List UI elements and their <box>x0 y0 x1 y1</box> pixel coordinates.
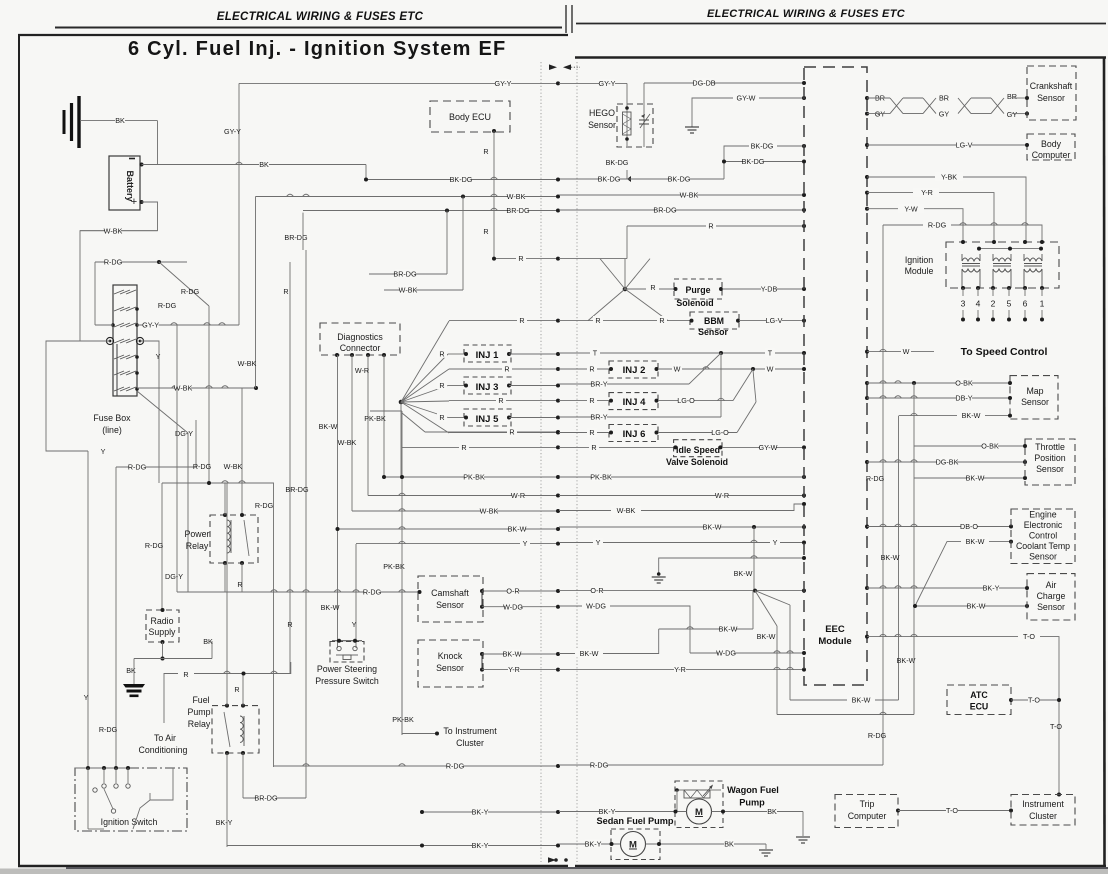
svg-text:R: R <box>237 580 242 589</box>
svg-text:Sensor: Sensor <box>1037 93 1065 103</box>
svg-text:W-BK: W-BK <box>617 506 636 515</box>
svg-text:PK-BK: PK-BK <box>392 715 414 724</box>
svg-text:W: W <box>903 347 910 356</box>
svg-text:Connector: Connector <box>340 343 381 353</box>
svg-text:Y-R: Y-R <box>674 665 686 674</box>
svg-text:Body: Body <box>1041 139 1062 149</box>
svg-text:Sensor: Sensor <box>436 663 464 673</box>
svg-text:W-BK: W-BK <box>174 384 193 393</box>
svg-text:BK-DG: BK-DG <box>742 157 765 166</box>
svg-text:GY-W: GY-W <box>737 94 756 103</box>
svg-text:BK-Y: BK-Y <box>216 818 233 827</box>
svg-text:T: T <box>768 349 773 358</box>
svg-text:BK-Y: BK-Y <box>472 808 489 817</box>
svg-text:R: R <box>518 254 523 263</box>
svg-text:Ignition: Ignition <box>905 255 933 265</box>
svg-text:R: R <box>498 396 503 405</box>
svg-text:Module: Module <box>818 636 851 647</box>
svg-text:O-BK: O-BK <box>955 379 973 388</box>
svg-text:W-BK: W-BK <box>680 191 699 200</box>
svg-text:Sensor: Sensor <box>698 327 728 337</box>
svg-text:ELECTRICAL WIRING & FUSES ETC: ELECTRICAL WIRING & FUSES ETC <box>217 11 424 23</box>
svg-text:BR-DG: BR-DG <box>284 233 308 242</box>
svg-text:DB-O: DB-O <box>960 522 978 531</box>
svg-text:DG-BK: DG-BK <box>936 458 959 467</box>
svg-text:T-O: T-O <box>1050 722 1062 731</box>
svg-text:Relay: Relay <box>186 541 209 551</box>
svg-text:R: R <box>483 147 488 156</box>
svg-text:1: 1 <box>1040 299 1045 309</box>
svg-text:BK: BK <box>767 807 777 816</box>
svg-text:Y: Y <box>101 447 106 456</box>
svg-text:Sensor: Sensor <box>1029 552 1057 562</box>
svg-text:R-DG: R-DG <box>868 731 887 740</box>
svg-text:W-BK: W-BK <box>338 438 357 447</box>
svg-text:M: M <box>695 807 703 818</box>
svg-text:Sedan Fuel Pump: Sedan Fuel Pump <box>596 816 673 826</box>
svg-text:BK: BK <box>259 160 269 169</box>
svg-text:BK-W: BK-W <box>580 649 599 658</box>
svg-text:Ignition Switch: Ignition Switch <box>101 817 158 827</box>
svg-text:W-DG: W-DG <box>586 602 606 611</box>
svg-text:DG-Y: DG-Y <box>175 429 193 438</box>
svg-text:DG-DB: DG-DB <box>692 79 715 88</box>
svg-text:INJ 1: INJ 1 <box>476 350 499 361</box>
svg-text:Pump: Pump <box>188 707 211 717</box>
svg-text:BK-DG: BK-DG <box>598 175 621 184</box>
svg-text:Y: Y <box>84 693 89 702</box>
svg-text:BK-W: BK-W <box>966 537 985 546</box>
svg-text:R: R <box>439 381 444 390</box>
svg-text:W-BK: W-BK <box>104 226 123 235</box>
svg-text:BR: BR <box>939 94 949 103</box>
svg-text:(line): (line) <box>102 425 122 435</box>
svg-text:To Speed Control: To Speed Control <box>961 346 1048 358</box>
svg-text:R: R <box>183 670 188 679</box>
svg-text:GY-Y: GY-Y <box>142 321 159 330</box>
svg-text:T-O: T-O <box>1023 632 1035 641</box>
svg-text:R: R <box>659 316 664 325</box>
svg-text:Purge: Purge <box>686 285 711 295</box>
svg-text:4: 4 <box>976 299 981 309</box>
svg-text:Engine: Engine <box>1029 510 1056 520</box>
svg-text:PK-BK: PK-BK <box>463 473 485 482</box>
svg-text:R: R <box>234 685 239 694</box>
svg-text:BK-W: BK-W <box>321 603 340 612</box>
svg-text:2: 2 <box>991 299 996 309</box>
svg-text:BR-DG: BR-DG <box>506 206 530 215</box>
svg-text:Y-W: Y-W <box>904 204 918 213</box>
svg-text:R: R <box>483 227 488 236</box>
svg-text:Sensor: Sensor <box>436 600 464 610</box>
svg-text:INJ 5: INJ 5 <box>476 414 499 425</box>
svg-text:BK-DG: BK-DG <box>606 158 629 167</box>
svg-text:T: T <box>593 349 598 358</box>
svg-text:LG-O: LG-O <box>677 396 695 405</box>
svg-text:R: R <box>589 428 594 437</box>
svg-text:BK: BK <box>126 666 136 675</box>
svg-text:Throttle: Throttle <box>1035 442 1065 452</box>
svg-text:R-DG: R-DG <box>145 541 164 550</box>
svg-text:Idle Speed: Idle Speed <box>676 445 720 455</box>
svg-text:LG-V: LG-V <box>956 141 973 150</box>
svg-text:W: W <box>674 365 681 374</box>
svg-text:GY-Y: GY-Y <box>495 79 512 88</box>
svg-text:Y: Y <box>773 538 778 547</box>
svg-text:R: R <box>519 316 524 325</box>
svg-text:R: R <box>595 316 600 325</box>
svg-text:Air: Air <box>1046 580 1057 590</box>
svg-text:ELECTRICAL WIRING & FUSES ETC: ELECTRICAL WIRING & FUSES ETC <box>707 8 906 20</box>
svg-text:Y-R: Y-R <box>508 665 520 674</box>
svg-text:BR: BR <box>1007 92 1017 101</box>
svg-text:BK-Y: BK-Y <box>599 807 616 816</box>
svg-text:INJ 2: INJ 2 <box>623 365 646 376</box>
svg-text:BK-W: BK-W <box>897 656 916 665</box>
svg-text:R-DG: R-DG <box>446 762 465 771</box>
svg-text:GY-Y: GY-Y <box>599 79 616 88</box>
svg-text:BK: BK <box>724 840 734 849</box>
svg-text:R-DG: R-DG <box>193 462 212 471</box>
svg-text:R-DG: R-DG <box>363 588 382 597</box>
svg-text:R-DG: R-DG <box>99 725 118 734</box>
svg-text:W-BK: W-BK <box>238 359 257 368</box>
svg-text:EEC: EEC <box>825 624 845 635</box>
svg-text:Sensor: Sensor <box>1036 464 1064 474</box>
svg-text:BR-Y: BR-Y <box>590 380 607 389</box>
svg-text:R-DG: R-DG <box>181 287 200 296</box>
svg-text:R: R <box>589 396 594 405</box>
svg-text:BK-DG: BK-DG <box>668 175 691 184</box>
svg-text:R: R <box>439 350 444 359</box>
svg-text:BK-W: BK-W <box>962 411 981 420</box>
svg-text:W-R: W-R <box>511 491 525 500</box>
svg-text:W-DG: W-DG <box>716 649 736 658</box>
svg-text:+: + <box>131 196 137 208</box>
svg-text:O-BK: O-BK <box>981 442 999 451</box>
svg-text:INJ 4: INJ 4 <box>623 397 646 408</box>
svg-text:Y: Y <box>352 620 357 629</box>
svg-text:GY-Y: GY-Y <box>224 127 241 136</box>
svg-text:GY-W: GY-W <box>759 443 778 452</box>
svg-text:BK-W: BK-W <box>503 650 522 659</box>
svg-text:6 Cyl. Fuel Inj. - Ignition Sy: 6 Cyl. Fuel Inj. - Ignition System EF <box>128 38 507 60</box>
svg-text:Fuse Box: Fuse Box <box>93 413 131 423</box>
svg-text:R-DG: R-DG <box>866 474 885 483</box>
svg-text:BK-W: BK-W <box>852 696 871 705</box>
svg-text:Instrument: Instrument <box>1022 799 1064 809</box>
svg-text:T-O: T-O <box>1028 696 1040 705</box>
svg-text:INJ 3: INJ 3 <box>476 382 499 393</box>
svg-text:Pressure Switch: Pressure Switch <box>315 676 379 686</box>
svg-text:Crankshaft: Crankshaft <box>1030 81 1073 91</box>
svg-text:Relay: Relay <box>188 719 211 729</box>
svg-text:Conditioning: Conditioning <box>139 745 188 755</box>
svg-text:BR-DG: BR-DG <box>653 206 677 215</box>
svg-text:R: R <box>708 222 713 231</box>
svg-text:BR-DG: BR-DG <box>393 270 417 279</box>
svg-text:Y-BK: Y-BK <box>941 173 957 182</box>
svg-text:R-DG: R-DG <box>104 258 123 267</box>
svg-text:R-DG: R-DG <box>128 463 147 472</box>
svg-text:BK-W: BK-W <box>319 422 338 431</box>
svg-text:Control: Control <box>1029 531 1057 541</box>
svg-text:Power Steering: Power Steering <box>317 664 377 674</box>
svg-text:Y-DB: Y-DB <box>761 285 778 294</box>
svg-text:3: 3 <box>961 299 966 309</box>
svg-text:INJ 6: INJ 6 <box>623 429 646 440</box>
svg-text:BK-W: BK-W <box>881 553 900 562</box>
svg-text:BR-DG: BR-DG <box>285 485 309 494</box>
svg-text:Camshaft: Camshaft <box>431 588 469 598</box>
svg-text:BK-Y: BK-Y <box>472 841 489 850</box>
svg-text:M: M <box>629 840 637 851</box>
svg-text:R: R <box>504 365 509 374</box>
svg-text:ATC: ATC <box>970 690 988 700</box>
svg-text:6: 6 <box>1023 299 1028 309</box>
svg-text:BK-W: BK-W <box>757 632 776 641</box>
svg-text:W-BK: W-BK <box>507 192 526 201</box>
svg-text:Fuel: Fuel <box>192 695 209 705</box>
svg-text:BK-W: BK-W <box>967 602 986 611</box>
svg-text:BK-W: BK-W <box>966 474 985 483</box>
svg-text:BK-DG: BK-DG <box>751 142 774 151</box>
svg-text:Trip: Trip <box>860 799 875 809</box>
svg-text:Supply: Supply <box>149 627 176 637</box>
svg-text:GY: GY <box>939 110 950 119</box>
svg-text:BR-DG: BR-DG <box>254 794 278 803</box>
svg-text:BBM: BBM <box>704 316 724 326</box>
svg-text:LG-O: LG-O <box>711 428 729 437</box>
svg-text:W: W <box>767 365 774 374</box>
svg-text:Y: Y <box>523 539 528 548</box>
svg-text:Sensor: Sensor <box>1021 397 1049 407</box>
svg-text:BK-DG: BK-DG <box>450 175 473 184</box>
svg-text:DB-Y: DB-Y <box>955 394 972 403</box>
svg-text:BK: BK <box>115 116 125 125</box>
svg-text:R: R <box>650 283 655 292</box>
svg-text:BR-Y: BR-Y <box>590 413 607 422</box>
svg-text:To Air: To Air <box>154 733 176 743</box>
svg-text:Valve Solenoid: Valve Solenoid <box>666 457 728 467</box>
svg-text:Power: Power <box>185 529 210 539</box>
svg-text:O-R: O-R <box>506 587 519 596</box>
svg-text:HEGO: HEGO <box>589 108 615 118</box>
svg-text:W-BK: W-BK <box>480 507 499 516</box>
svg-text:Cluster: Cluster <box>456 738 484 748</box>
svg-text:R: R <box>589 365 594 374</box>
svg-text:R: R <box>509 428 514 437</box>
svg-text:PK-BK: PK-BK <box>590 473 612 482</box>
svg-text:Sensor: Sensor <box>1037 602 1065 612</box>
svg-text:Radio: Radio <box>151 616 174 626</box>
svg-text:R-DG: R-DG <box>590 761 609 770</box>
svg-text:Computer: Computer <box>1032 150 1071 160</box>
svg-text:Wagon Fuel: Wagon Fuel <box>727 785 779 795</box>
svg-text:Body ECU: Body ECU <box>449 112 491 122</box>
svg-text:R-DG: R-DG <box>255 501 274 510</box>
svg-text:R: R <box>591 443 596 452</box>
svg-text:ECU: ECU <box>970 702 989 712</box>
svg-text:W-DG: W-DG <box>503 602 523 611</box>
svg-text:Diagnostics: Diagnostics <box>337 332 383 342</box>
svg-text:Map: Map <box>1026 386 1043 396</box>
svg-text:O-R: O-R <box>590 586 603 595</box>
svg-text:R: R <box>439 413 444 422</box>
svg-text:R: R <box>287 620 292 629</box>
svg-text:DG-Y: DG-Y <box>165 572 183 581</box>
svg-text:Coolant Temp: Coolant Temp <box>1016 541 1070 551</box>
svg-text:BK-W: BK-W <box>734 569 753 578</box>
svg-text:Y: Y <box>156 352 161 361</box>
svg-text:Position: Position <box>1034 453 1065 463</box>
svg-text:Y: Y <box>596 538 601 547</box>
svg-text:R-DG: R-DG <box>158 301 177 310</box>
svg-text:LG-V: LG-V <box>766 316 783 325</box>
svg-text:W-BK: W-BK <box>399 286 418 295</box>
svg-text:BK-W: BK-W <box>508 525 527 534</box>
svg-text:T-O: T-O <box>946 806 958 815</box>
svg-text:Cluster: Cluster <box>1029 811 1057 821</box>
svg-text:Pump: Pump <box>739 798 765 808</box>
svg-text:GY: GY <box>875 110 886 119</box>
svg-text:W-BK: W-BK <box>224 462 243 471</box>
svg-text:Electronic: Electronic <box>1024 520 1063 530</box>
svg-text:BK-W: BK-W <box>719 625 738 634</box>
svg-text:Y-R: Y-R <box>921 188 933 197</box>
svg-text:W-R: W-R <box>355 366 369 375</box>
svg-text:PK-BK: PK-BK <box>364 414 386 423</box>
svg-text:W-R: W-R <box>715 491 729 500</box>
svg-text:To Instrument: To Instrument <box>443 726 497 736</box>
svg-text:Module: Module <box>905 266 934 276</box>
svg-text:Sensor: Sensor <box>588 120 616 130</box>
svg-text:BK: BK <box>203 637 213 646</box>
svg-text:Charge: Charge <box>1037 591 1066 601</box>
svg-text:BK-W: BK-W <box>703 523 722 532</box>
svg-text:Knock: Knock <box>438 651 463 661</box>
svg-text:R: R <box>461 443 466 452</box>
svg-text:BK-Y: BK-Y <box>585 840 602 849</box>
svg-text:5: 5 <box>1007 299 1012 309</box>
svg-text:Computer: Computer <box>848 811 887 821</box>
svg-text:Solenoid: Solenoid <box>676 298 713 308</box>
svg-text:BK-Y: BK-Y <box>983 584 1000 593</box>
svg-text:R: R <box>283 287 288 296</box>
svg-text:GY: GY <box>1007 110 1018 119</box>
svg-text:R-DG: R-DG <box>928 221 947 230</box>
